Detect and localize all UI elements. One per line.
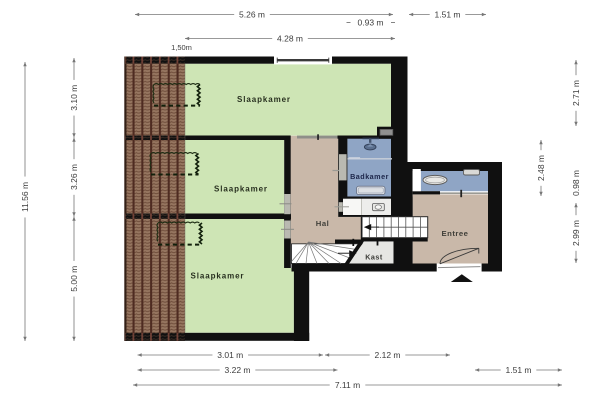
svg-text:5.00 m: 5.00 m (69, 266, 79, 292)
svg-text:3.22 m: 3.22 m (225, 365, 251, 375)
svg-text:5.26 m: 5.26 m (239, 10, 265, 20)
svg-text:1,50m: 1,50m (171, 43, 192, 52)
svg-text:0.98 m: 0.98 m (571, 170, 581, 196)
svg-text:Slaapkamer: Slaapkamer (191, 272, 245, 281)
svg-text:Entree: Entree (442, 229, 469, 238)
svg-text:Badkamer: Badkamer (350, 172, 389, 181)
svg-text:2.99 m: 2.99 m (571, 220, 581, 246)
svg-text:11.56 m: 11.56 m (20, 182, 30, 212)
svg-text:3.26 m: 3.26 m (69, 164, 79, 190)
svg-text:0.93 m: 0.93 m (358, 18, 384, 28)
svg-text:3.10 m: 3.10 m (69, 85, 79, 111)
svg-text:Kast: Kast (365, 253, 383, 262)
svg-text:Hal: Hal (316, 219, 329, 228)
svg-text:4.28 m: 4.28 m (277, 34, 303, 44)
svg-text:7.11 m: 7.11 m (335, 380, 360, 390)
svg-text:Slaapkamer: Slaapkamer (214, 185, 268, 194)
svg-text:2.71 m: 2.71 m (571, 80, 581, 106)
svg-text:3.01 m: 3.01 m (217, 350, 243, 360)
svg-text:1.51 m: 1.51 m (435, 10, 461, 20)
svg-text:1.51 m: 1.51 m (506, 365, 532, 375)
svg-text:2.48 m: 2.48 m (536, 155, 546, 181)
svg-text:2.12 m: 2.12 m (375, 350, 401, 360)
svg-text:Slaapkamer: Slaapkamer (237, 95, 291, 104)
